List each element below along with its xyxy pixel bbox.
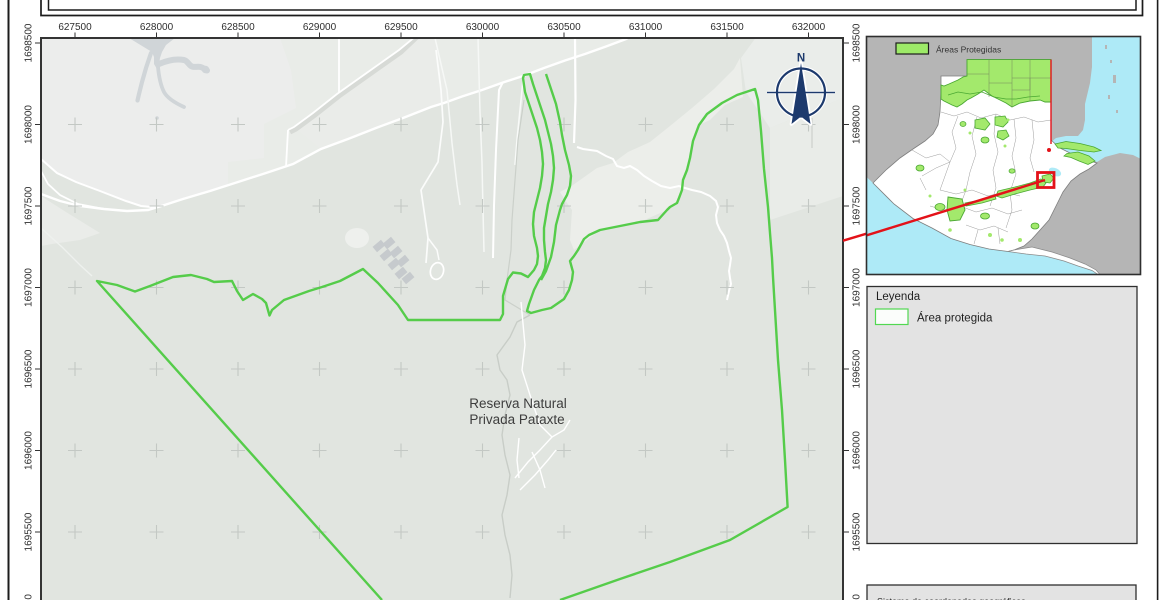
svg-text:1697000: 1697000 <box>24 268 35 307</box>
svg-text:630000: 630000 <box>466 22 500 33</box>
svg-text:631500: 631500 <box>710 22 744 33</box>
svg-text:632000: 632000 <box>792 22 826 33</box>
svg-text:629000: 629000 <box>303 22 337 33</box>
svg-text:1695000: 1695000 <box>852 594 863 600</box>
svg-text:629500: 629500 <box>384 22 418 33</box>
svg-text:631000: 631000 <box>629 22 663 33</box>
svg-text:Áreas Protegidas: Áreas Protegidas <box>936 45 1001 55</box>
svg-text:1696000: 1696000 <box>852 431 863 470</box>
svg-text:1696500: 1696500 <box>852 349 863 388</box>
svg-text:1697500: 1697500 <box>24 186 35 225</box>
svg-text:1695000: 1695000 <box>24 594 35 600</box>
svg-text:628500: 628500 <box>221 22 255 33</box>
svg-text:1695500: 1695500 <box>852 512 863 551</box>
svg-text:N: N <box>797 53 805 65</box>
svg-text:627500: 627500 <box>58 22 92 33</box>
svg-text:1698500: 1698500 <box>24 23 35 62</box>
svg-text:1698000: 1698000 <box>852 105 863 144</box>
svg-text:1696500: 1696500 <box>24 349 35 388</box>
svg-text:Leyenda: Leyenda <box>876 291 921 303</box>
svg-text:Sistema de coordenadas geográf: Sistema de coordenadas geográficas <box>877 597 1026 600</box>
svg-text:630500: 630500 <box>547 22 581 33</box>
svg-text:Reserva Natural: Reserva Natural <box>469 396 567 411</box>
svg-text:1698000: 1698000 <box>24 105 35 144</box>
svg-text:1698500: 1698500 <box>852 23 863 62</box>
svg-text:Área protegida: Área protegida <box>917 312 993 325</box>
svg-text:1696000: 1696000 <box>24 431 35 470</box>
svg-text:1695500: 1695500 <box>24 512 35 551</box>
svg-text:1697500: 1697500 <box>852 186 863 225</box>
svg-text:1697000: 1697000 <box>852 268 863 307</box>
svg-text:Privada Pataxte: Privada Pataxte <box>469 412 564 427</box>
svg-text:628000: 628000 <box>140 22 174 33</box>
